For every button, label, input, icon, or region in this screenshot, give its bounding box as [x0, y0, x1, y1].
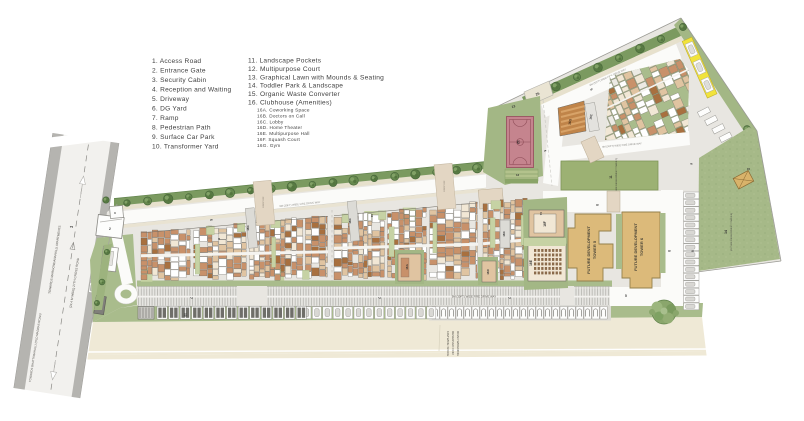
svg-text:16C: 16C — [348, 217, 352, 223]
svg-text:9M (30FT) WIDE FIRE DRIVE WAY: 9M (30FT) WIDE FIRE DRIVE WAY — [452, 294, 497, 298]
svg-text:5: 5 — [595, 204, 599, 206]
svg-text:16C. Lobby: 16C. Lobby — [257, 119, 284, 124]
svg-text:DROP OFF: DROP OFF — [263, 196, 265, 208]
svg-text:16B. Doctors on Call: 16B. Doctors on Call — [257, 113, 305, 118]
svg-text:14. Toddler Park & Landscape: 14. Toddler Park & Landscape — [248, 83, 343, 90]
svg-text:7: 7 — [377, 297, 381, 299]
svg-text:10. Transformer Yard: 10. Transformer Yard — [152, 143, 219, 150]
svg-text:16C: 16C — [502, 230, 506, 236]
svg-text:11: 11 — [370, 214, 374, 218]
svg-text:10M WIDE SPACE: 10M WIDE SPACE — [446, 331, 450, 356]
svg-text:16F: 16F — [543, 221, 547, 227]
svg-text:ROAD WIDENING: ROAD WIDENING — [456, 331, 460, 357]
svg-text:3. Security Cabin: 3. Security Cabin — [152, 77, 207, 84]
svg-text:2: 2 — [109, 227, 111, 231]
svg-text:5. Driveway: 5. Driveway — [152, 96, 190, 103]
svg-text:16A. Coworking Space: 16A. Coworking Space — [257, 108, 310, 113]
svg-text:13: 13 — [516, 173, 520, 177]
svg-text:16D. Home Theater: 16D. Home Theater — [257, 125, 303, 130]
svg-text:1. Access Road: 1. Access Road — [152, 58, 201, 65]
svg-text:5: 5 — [625, 294, 627, 298]
svg-text:16C: 16C — [246, 224, 250, 230]
svg-text:11. Landscape Pockets: 11. Landscape Pockets — [248, 58, 322, 65]
svg-text:16F. Squash Court: 16F. Squash Court — [257, 137, 301, 142]
svg-text:(FUTURE DEVELOPMENT TOWER 8): (FUTURE DEVELOPMENT TOWER 8) — [731, 213, 733, 251]
svg-text:9: 9 — [691, 250, 695, 252]
svg-text:TOWER 5: TOWER 5 — [592, 240, 597, 259]
svg-text:4. Reception and Waiting: 4. Reception and Waiting — [152, 86, 232, 93]
svg-text:15: 15 — [747, 167, 751, 171]
svg-text:14: 14 — [724, 230, 728, 234]
svg-text:TOWER 6: TOWER 6 — [639, 237, 644, 256]
svg-text:16E. Multipurpose Hall: 16E. Multipurpose Hall — [257, 131, 310, 136]
svg-text:RESERVED FOR: RESERVED FOR — [451, 331, 455, 355]
svg-text:9. Surface Car Park: 9. Surface Car Park — [152, 134, 215, 141]
svg-text:16D: 16D — [486, 268, 490, 274]
svg-text:FUTURE DEVELOPMENT: FUTURE DEVELOPMENT — [586, 226, 591, 274]
svg-text:6. DG Yard: 6. DG Yard — [152, 105, 187, 112]
svg-text:12. Multipurpose Court: 12. Multipurpose Court — [248, 66, 320, 73]
svg-text:12: 12 — [516, 140, 520, 144]
svg-text:16. Clubhouse (Amenities): 16. Clubhouse (Amenities) — [248, 99, 332, 106]
svg-text:11: 11 — [609, 175, 613, 179]
svg-text:16G. Gym: 16G. Gym — [257, 143, 280, 148]
svg-text:7. Ramp: 7. Ramp — [152, 115, 179, 122]
svg-text:11: 11 — [539, 212, 543, 216]
svg-text:7: 7 — [507, 297, 511, 299]
svg-text:16A: 16A — [405, 263, 409, 269]
svg-text:15. Organic Waste Converter: 15. Organic Waste Converter — [248, 91, 340, 98]
svg-text:16E: 16E — [529, 260, 533, 266]
svg-text:DROP OFF: DROP OFF — [444, 180, 446, 192]
svg-text:(FUTURE DEVELOPMENT TOWER 7): (FUTURE DEVELOPMENT TOWER 7) — [616, 158, 618, 196]
svg-text:10: 10 — [183, 313, 187, 317]
svg-text:2. Entrance Gate: 2. Entrance Gate — [152, 67, 206, 74]
svg-text:13. Graphical Lawn with Mound: 13. Graphical Lawn with Mounds & Seating — [248, 74, 384, 81]
svg-text:8. Pedestrian Path: 8. Pedestrian Path — [152, 124, 211, 131]
svg-text:FUTURE DEVELOPMENT: FUTURE DEVELOPMENT — [633, 223, 638, 271]
svg-text:5: 5 — [667, 250, 671, 252]
svg-text:7: 7 — [189, 297, 193, 299]
